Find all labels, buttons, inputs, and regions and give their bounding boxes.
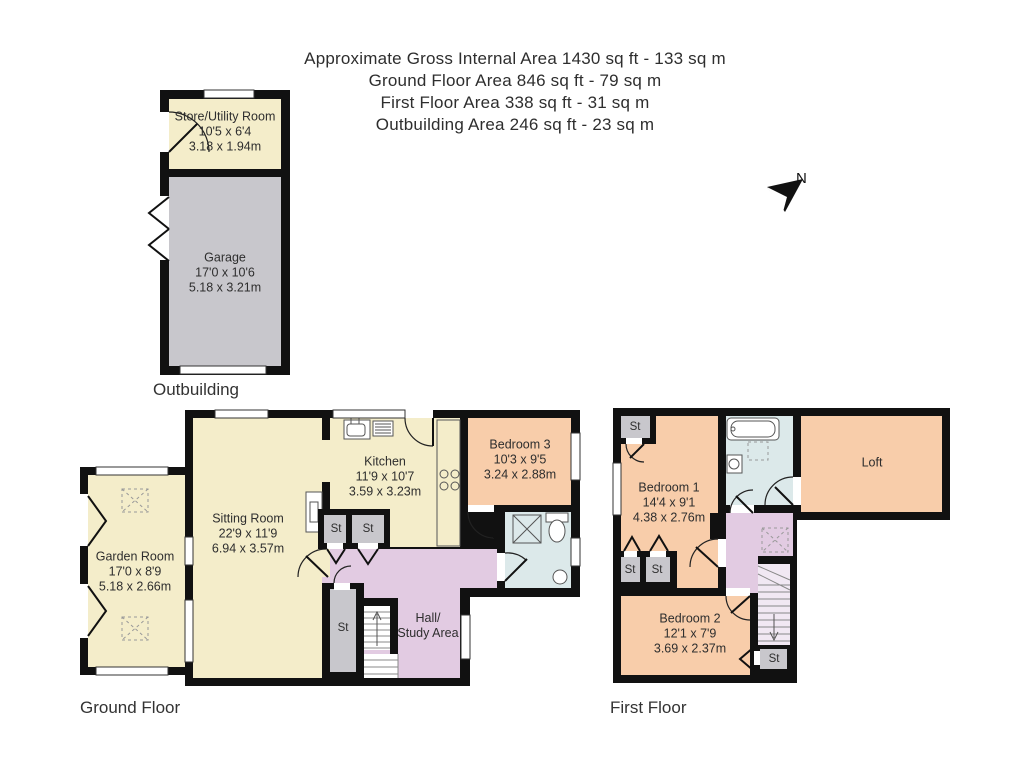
first-floor-label: First Floor bbox=[610, 698, 687, 718]
garage-doors bbox=[149, 196, 169, 261]
north-label: N bbox=[796, 170, 807, 187]
ground-area-line: Ground Floor Area 846 sq ft - 79 sq m bbox=[155, 70, 875, 92]
first-basin-symbol bbox=[727, 455, 742, 473]
gross-area-line: Approximate Gross Internal Area 1430 sq … bbox=[155, 48, 875, 70]
room-label-garage: Garage 17'0 x 10'6 5.18 x 3.21m bbox=[189, 251, 261, 296]
st-label-ground-2: St bbox=[363, 523, 374, 535]
st-label-first-1: St bbox=[630, 421, 641, 433]
st-label-first-4: St bbox=[769, 653, 780, 665]
kitchen-drainer-symbol bbox=[373, 421, 393, 436]
room-label-hall: Hall/ Study Area bbox=[397, 611, 458, 641]
floorplan-page: Approximate Gross Internal Area 1430 sq … bbox=[0, 0, 1024, 768]
room-label-sitting: Sitting Room 22'9 x 11'9 6.94 x 3.57m bbox=[212, 512, 284, 557]
st-label-first-2: St bbox=[625, 564, 636, 576]
room-label-kitchen: Kitchen 11'9 x 10'7 3.59 x 3.23m bbox=[349, 455, 421, 500]
ground-floor-label: Ground Floor bbox=[80, 698, 180, 718]
room-label-bedroom3: Bedroom 3 10'3 x 9'5 3.24 x 2.88m bbox=[484, 438, 556, 483]
kitchen-sink-symbol bbox=[344, 418, 370, 439]
room-label-bedroom2: Bedroom 2 12'1 x 7'9 3.69 x 2.37m bbox=[654, 612, 726, 657]
st-label-ground-3: St bbox=[338, 622, 349, 634]
outbuilding-label: Outbuilding bbox=[153, 380, 239, 400]
room-label-bedroom1: Bedroom 1 14'4 x 9'1 4.38 x 2.76m bbox=[633, 481, 705, 526]
st-label-first-3: St bbox=[652, 564, 663, 576]
bathtub-symbol bbox=[727, 418, 779, 440]
first-stairs bbox=[758, 556, 797, 645]
sitting-kitchen-opening bbox=[322, 440, 330, 482]
wall-chunk bbox=[710, 513, 726, 539]
room-label-store: Store/Utility Room 10'5 x 6'4 3.18 x 1.9… bbox=[175, 110, 276, 155]
basin-symbol bbox=[553, 570, 567, 584]
room-label-garden: Garden Room 17'0 x 8'9 5.18 x 2.66m bbox=[96, 550, 175, 595]
bedroom1-window bbox=[613, 463, 621, 515]
st-label-ground-1: St bbox=[331, 523, 342, 535]
ground-stairs bbox=[364, 598, 398, 678]
room-label-loft: Loft bbox=[862, 456, 883, 471]
